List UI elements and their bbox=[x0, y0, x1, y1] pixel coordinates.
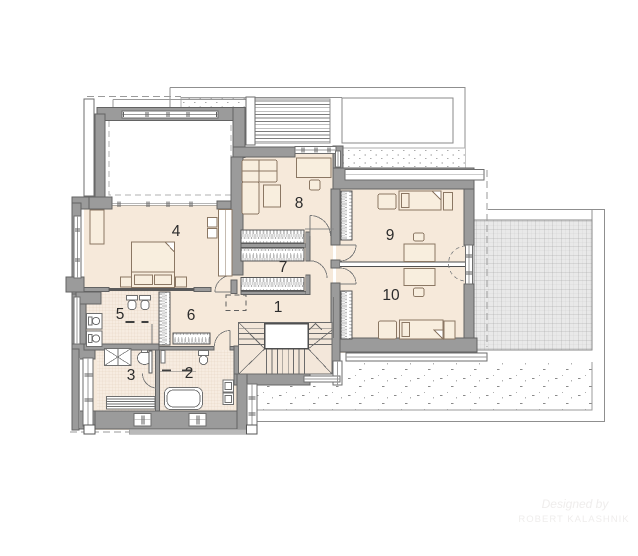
svg-text:Designed by: Designed by bbox=[542, 497, 610, 511]
svg-text:3: 3 bbox=[127, 367, 136, 384]
svg-text:6: 6 bbox=[187, 307, 196, 324]
svg-text:10: 10 bbox=[382, 287, 400, 304]
svg-text:9: 9 bbox=[386, 227, 395, 244]
svg-text:8: 8 bbox=[295, 195, 304, 212]
svg-text:4: 4 bbox=[172, 223, 181, 240]
svg-text:1: 1 bbox=[274, 299, 283, 316]
svg-text:7: 7 bbox=[279, 259, 288, 276]
svg-text:ROBERT KALASHNIK: ROBERT KALASHNIK bbox=[518, 514, 629, 525]
svg-text:5: 5 bbox=[116, 306, 125, 323]
svg-text:2: 2 bbox=[185, 365, 194, 382]
